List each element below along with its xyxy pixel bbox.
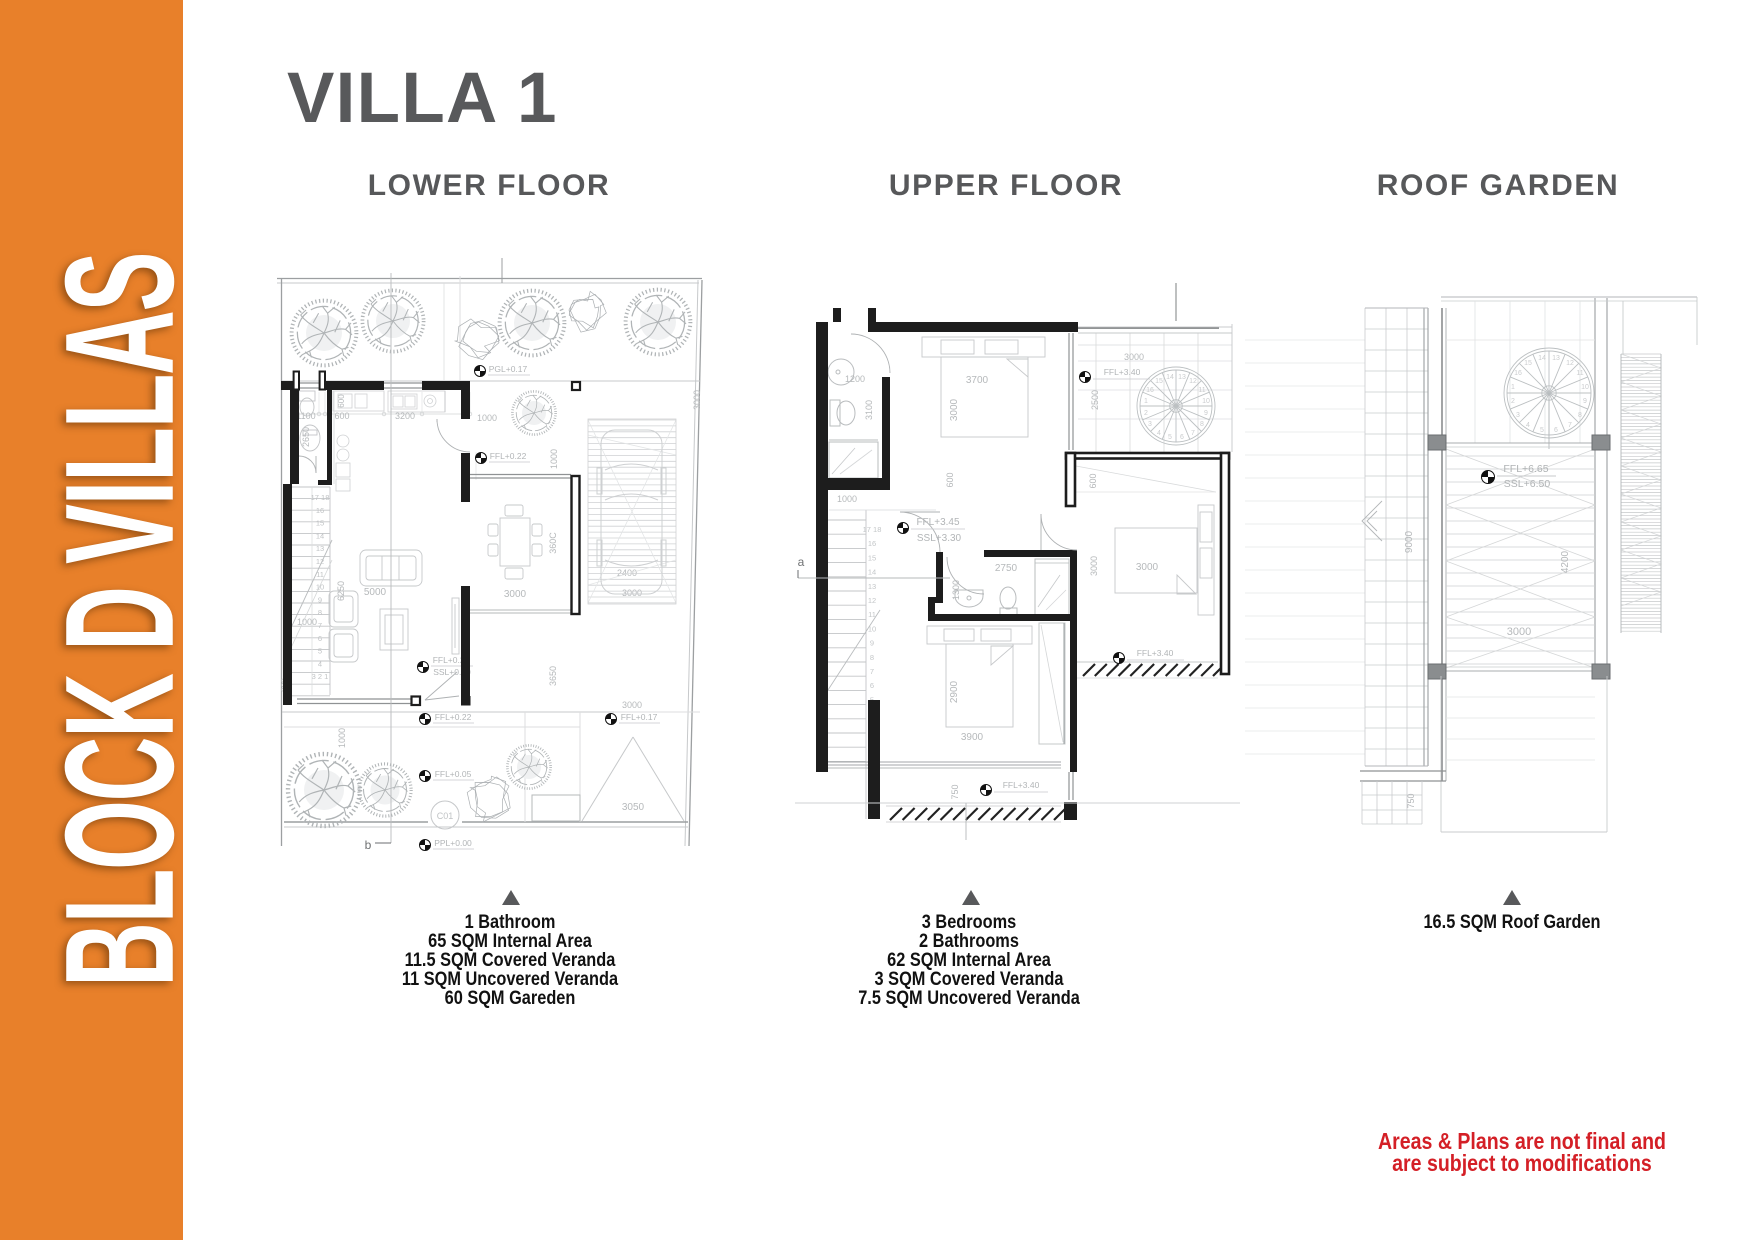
svg-text:FFL+3.40: FFL+3.40 [1003, 780, 1040, 790]
svg-text:13: 13 [316, 544, 324, 553]
svg-text:3: 3 [1148, 421, 1152, 428]
svg-text:2500: 2500 [1090, 390, 1100, 410]
svg-text:12: 12 [1189, 378, 1197, 385]
svg-text:4: 4 [1526, 422, 1530, 429]
svg-text:3200: 3200 [395, 411, 415, 421]
svg-text:3: 3 [1516, 412, 1520, 419]
svg-text:600: 600 [1088, 473, 1098, 488]
svg-text:1300: 1300 [951, 580, 961, 600]
svg-text:15: 15 [316, 519, 324, 528]
svg-text:3650: 3650 [548, 666, 558, 686]
svg-text:1: 1 [1144, 398, 1148, 405]
svg-text:6: 6 [1554, 427, 1558, 434]
svg-text:3700: 3700 [966, 375, 989, 386]
svg-text:5: 5 [1540, 427, 1544, 434]
svg-text:3000: 3000 [949, 398, 960, 421]
svg-text:9: 9 [1204, 410, 1208, 417]
svg-text:16: 16 [1514, 370, 1522, 377]
svg-text:SSL+3.30: SSL+3.30 [917, 533, 962, 544]
svg-text:FFL+0.22: FFL+0.22 [490, 451, 527, 461]
svg-text:3000: 3000 [622, 588, 642, 598]
svg-text:9000: 9000 [1404, 530, 1415, 553]
svg-text:2: 2 [1144, 410, 1148, 417]
svg-text:9: 9 [1583, 398, 1587, 405]
svg-text:PGL+0.17: PGL+0.17 [489, 364, 528, 374]
svg-text:17 18: 17 18 [311, 493, 330, 502]
svg-text:3 2 1: 3 2 1 [312, 672, 329, 681]
svg-text:6: 6 [318, 634, 322, 643]
svg-text:5: 5 [1168, 434, 1172, 441]
svg-text:13: 13 [868, 582, 876, 591]
svg-text:6: 6 [1180, 434, 1184, 441]
svg-text:16: 16 [316, 506, 324, 515]
svg-text:3050: 3050 [622, 802, 645, 813]
svg-text:10: 10 [1202, 398, 1210, 405]
svg-text:9: 9 [870, 639, 874, 648]
svg-text:1200: 1200 [845, 374, 865, 384]
svg-text:SSL+6.50: SSL+6.50 [1504, 478, 1551, 490]
svg-text:12: 12 [316, 557, 324, 566]
svg-text:C01: C01 [437, 811, 454, 821]
svg-text:11: 11 [1198, 387, 1205, 394]
svg-text:3000: 3000 [692, 390, 702, 410]
svg-text:8: 8 [870, 653, 874, 662]
svg-text:1000: 1000 [477, 413, 497, 423]
svg-text:FFL+0.05: FFL+0.05 [435, 769, 472, 779]
svg-text:750: 750 [1406, 793, 1416, 808]
svg-text:FFL+0.22: FFL+0.22 [435, 712, 472, 722]
svg-text:11: 11 [1576, 370, 1583, 377]
svg-text:7: 7 [318, 621, 322, 630]
svg-text:5: 5 [318, 647, 322, 656]
svg-text:8: 8 [1200, 421, 1204, 428]
svg-text:3000: 3000 [504, 589, 527, 600]
svg-text:13: 13 [1552, 355, 1560, 362]
svg-text:3100: 3100 [864, 400, 874, 420]
svg-text:360C: 360C [548, 532, 558, 554]
svg-text:4: 4 [318, 659, 322, 668]
svg-text:7: 7 [870, 667, 874, 676]
svg-text:3000: 3000 [1124, 352, 1144, 362]
svg-text:1000: 1000 [549, 449, 559, 469]
svg-text:11: 11 [316, 570, 324, 579]
svg-text:1: 1 [1511, 384, 1515, 391]
svg-text:b: b [365, 838, 372, 852]
svg-text:3000: 3000 [1089, 556, 1099, 576]
svg-text:2: 2 [1511, 398, 1515, 405]
svg-text:3000: 3000 [622, 700, 642, 710]
svg-text:11: 11 [868, 610, 876, 619]
svg-text:FFL+3.40: FFL+3.40 [1137, 648, 1174, 658]
svg-text:5000: 5000 [364, 587, 387, 598]
svg-text:6: 6 [870, 681, 874, 690]
svg-text:10: 10 [1581, 384, 1589, 391]
svg-text:3000: 3000 [1136, 562, 1159, 573]
svg-text:PPL+0.00: PPL+0.00 [434, 838, 472, 848]
svg-text:1000: 1000 [297, 617, 317, 627]
svg-text:1000: 1000 [337, 728, 347, 748]
svg-text:13: 13 [1178, 374, 1186, 381]
svg-text:15: 15 [1524, 360, 1532, 367]
svg-text:14: 14 [316, 531, 324, 540]
svg-text:3000: 3000 [1507, 626, 1531, 638]
svg-text:FFL+0.17: FFL+0.17 [621, 712, 658, 722]
svg-text:a: a [798, 555, 805, 569]
svg-text:FFL+3.40: FFL+3.40 [1104, 367, 1141, 377]
svg-text:16: 16 [868, 539, 876, 548]
svg-text:600: 600 [945, 472, 955, 487]
svg-text:12: 12 [1566, 360, 1574, 367]
svg-text:4: 4 [1157, 430, 1161, 437]
svg-text:2900: 2900 [949, 680, 960, 703]
svg-text:1000: 1000 [837, 494, 857, 504]
svg-text:FFL+6.65: FFL+6.65 [1503, 463, 1548, 475]
svg-text:10: 10 [316, 583, 324, 592]
svg-text:14: 14 [1166, 374, 1174, 381]
svg-text:3900: 3900 [961, 732, 984, 743]
svg-text:4200: 4200 [1560, 550, 1571, 573]
svg-text:16: 16 [1146, 387, 1154, 394]
svg-text:750: 750 [950, 784, 960, 799]
svg-text:17 18: 17 18 [863, 525, 882, 534]
svg-text:2750: 2750 [995, 563, 1018, 574]
svg-text:600: 600 [334, 411, 349, 421]
svg-text:FFL+3.45: FFL+3.45 [916, 517, 960, 528]
svg-text:7: 7 [1568, 422, 1572, 429]
svg-text:15: 15 [868, 553, 876, 562]
svg-text:10: 10 [868, 624, 876, 633]
svg-text:14: 14 [1538, 355, 1546, 362]
svg-text:8: 8 [318, 608, 322, 617]
svg-text:15: 15 [1155, 378, 1163, 385]
svg-text:14: 14 [868, 568, 876, 577]
svg-text:8: 8 [1578, 412, 1582, 419]
svg-text:9: 9 [318, 595, 322, 604]
svg-text:7: 7 [1191, 430, 1195, 437]
svg-text:12: 12 [868, 596, 876, 605]
